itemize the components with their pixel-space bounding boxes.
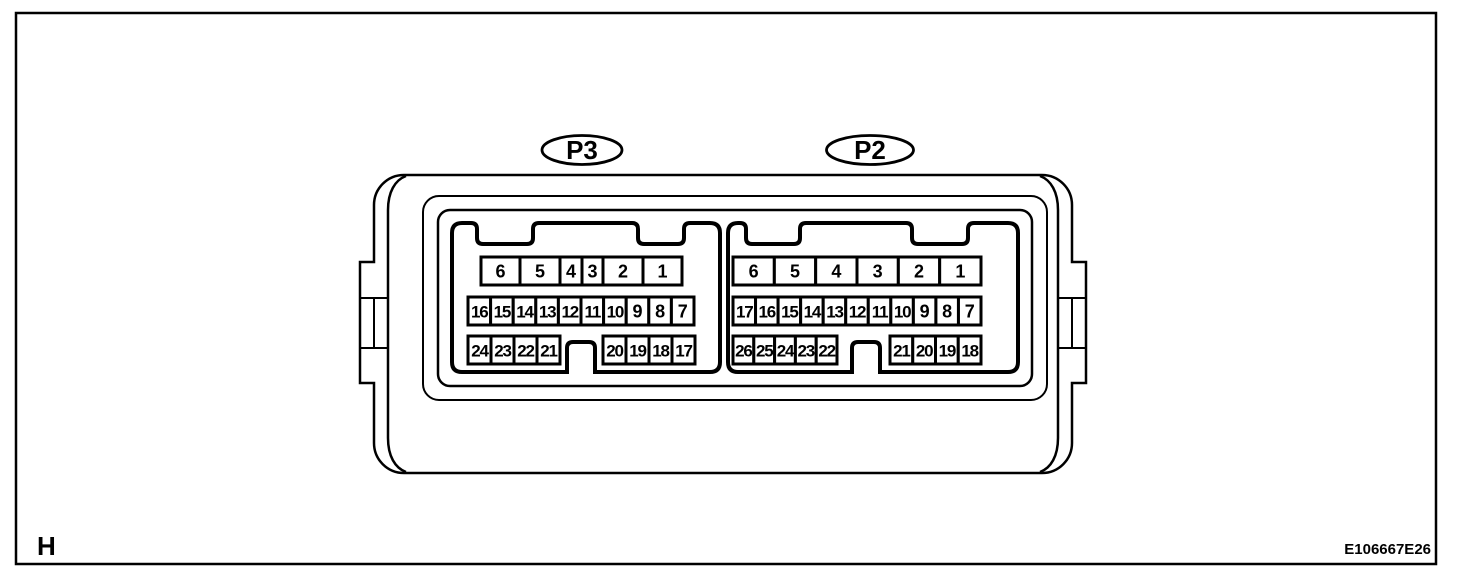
pin-number: 5 [535, 262, 545, 282]
pin-number: 21 [893, 342, 910, 361]
pin-number: 19 [939, 342, 956, 361]
pin-number: 23 [798, 342, 815, 361]
pin-grids: 6543211615141312111098724232221201918176… [468, 257, 981, 364]
pin-number: 12 [561, 303, 578, 322]
pin-number: 3 [587, 262, 597, 282]
pin-number: 23 [494, 342, 511, 361]
pin-number: 25 [756, 342, 773, 361]
pin-number: 24 [777, 342, 795, 361]
pin-number: 8 [655, 302, 665, 322]
diagram-page: P3 P2 6543211615141312111098724232221201… [0, 0, 1472, 578]
pin-number: 6 [749, 262, 759, 282]
pin-number: 14 [516, 303, 534, 322]
pin-number: 17 [736, 303, 753, 322]
pin-number: 21 [540, 342, 557, 361]
pin-number: 9 [632, 302, 642, 322]
pin-number: 16 [759, 303, 776, 322]
pin-number: 6 [495, 262, 505, 282]
pin-number: 5 [790, 262, 800, 282]
pin-number: 1 [955, 262, 965, 282]
pin-number: 20 [606, 342, 623, 361]
pin-number: 10 [894, 303, 911, 322]
pin-number: 2 [618, 262, 628, 282]
pin-number: 22 [818, 342, 835, 361]
pin-number: 15 [494, 303, 511, 322]
connector-pinout-diagram: P3 P2 6543211615141312111098724232221201… [0, 0, 1472, 578]
pin-number: 13 [539, 303, 556, 322]
figure-code: E106667E26 [1344, 541, 1431, 558]
pin-number: 3 [873, 262, 883, 282]
pin-number: 18 [961, 342, 978, 361]
pin-number: 8 [942, 302, 952, 322]
page-marker: H [37, 531, 56, 561]
pin-number: 7 [678, 302, 688, 322]
pin-number: 11 [872, 303, 888, 322]
housing-bevel-left [388, 176, 406, 472]
pin-number: 20 [916, 342, 933, 361]
pin-number: 22 [517, 342, 534, 361]
housing-bevel-right [1040, 176, 1058, 472]
pin-number: 15 [781, 303, 798, 322]
pin-number: 16 [471, 303, 488, 322]
pin-number: 14 [804, 303, 822, 322]
pin-number: 26 [735, 342, 752, 361]
pin-number: 10 [607, 303, 624, 322]
pin-number: 7 [965, 302, 975, 322]
mounting-bracket-right [1058, 298, 1086, 348]
pin-number: 4 [831, 262, 841, 282]
pin-number: 13 [826, 303, 843, 322]
connector-label-p2: P2 [854, 135, 886, 165]
connector-label-p3: P3 [566, 135, 598, 165]
pin-number: 1 [657, 262, 667, 282]
pin-number: 9 [920, 302, 930, 322]
mounting-bracket-left [360, 298, 388, 348]
pin-number: 18 [652, 342, 669, 361]
pin-number: 12 [849, 303, 866, 322]
pin-number: 11 [585, 303, 601, 322]
pin-number: 19 [629, 342, 646, 361]
pin-number: 17 [675, 342, 692, 361]
pin-number: 4 [566, 262, 576, 282]
pin-number: 24 [471, 342, 489, 361]
pin-number: 2 [914, 262, 924, 282]
